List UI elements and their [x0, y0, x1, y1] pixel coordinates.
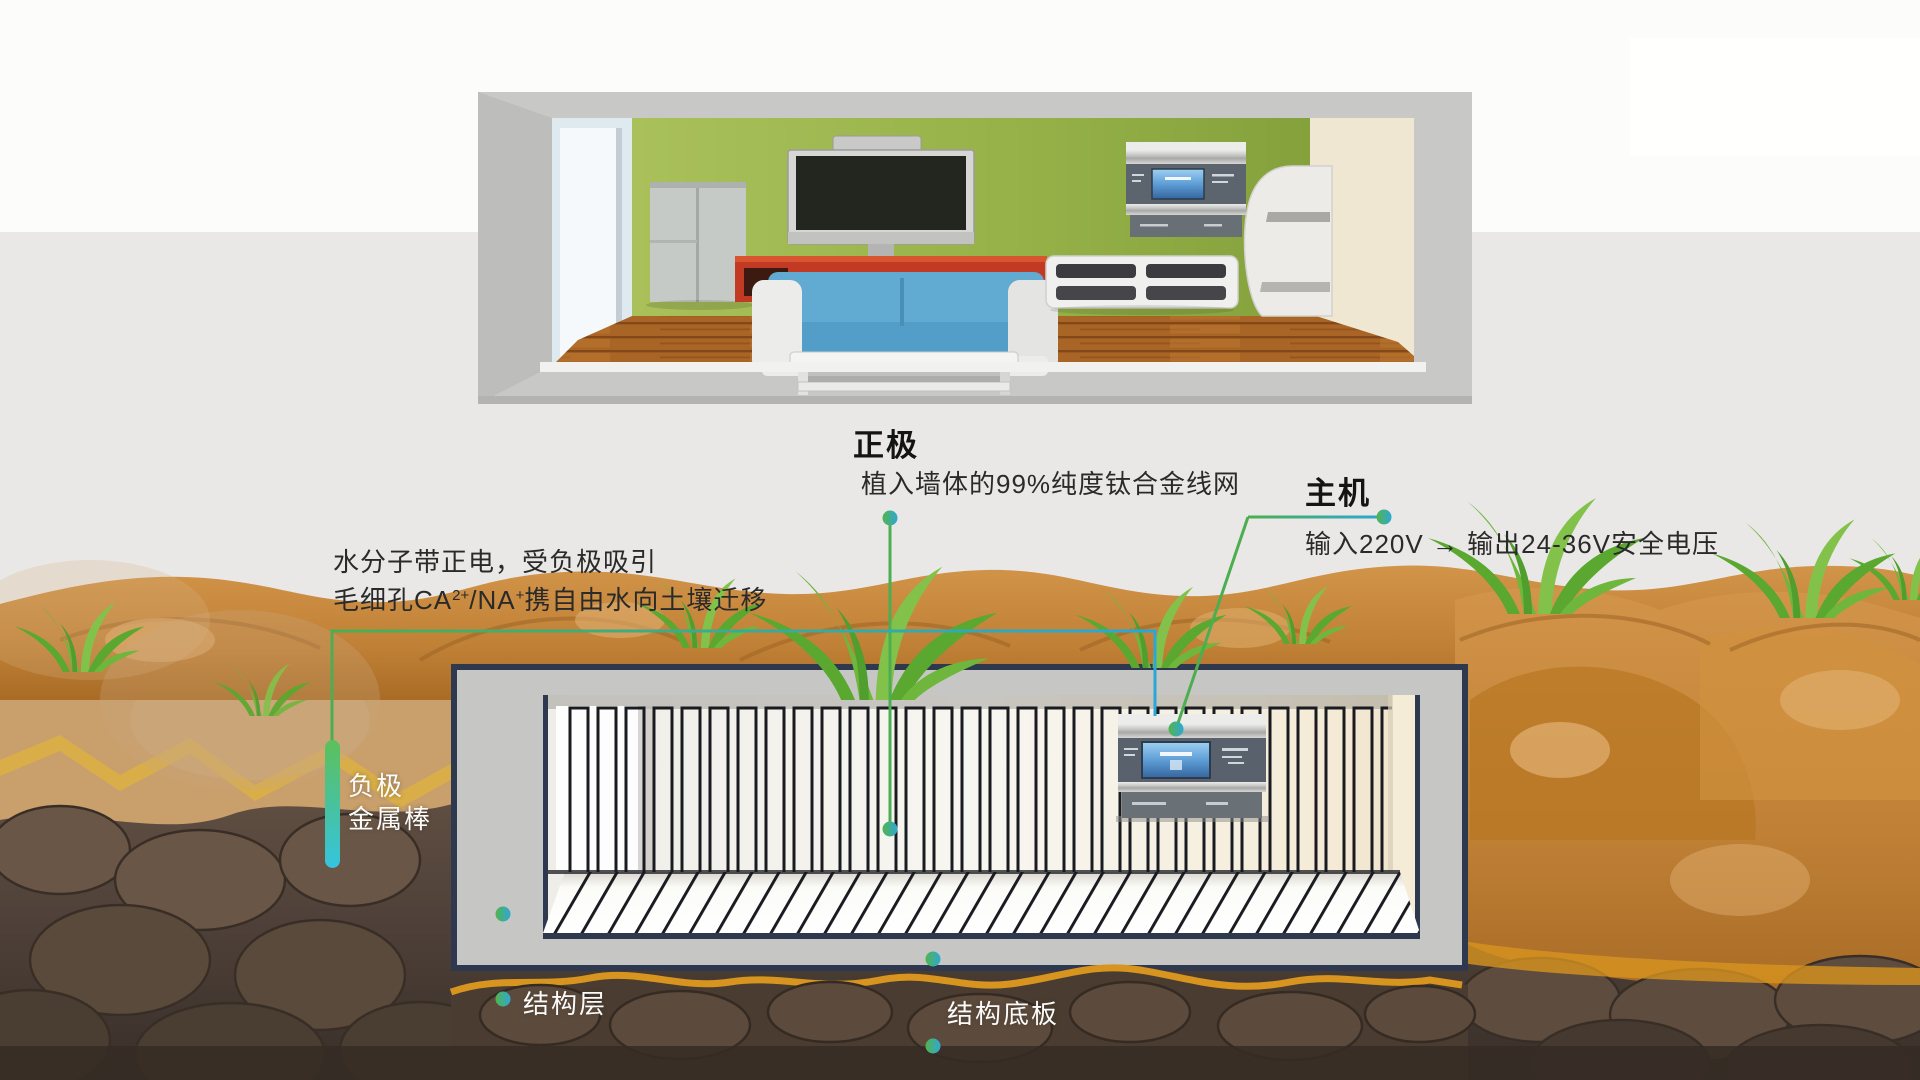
- structure-layer-dot-top: [496, 907, 511, 922]
- coffee-table: [790, 352, 1018, 395]
- base-plate-dot-bottom: [926, 1039, 941, 1054]
- host-device-dot: [1169, 722, 1184, 737]
- structure-layer-dot-bottom: [496, 992, 511, 1007]
- ion-superscript-ca: 2+: [452, 587, 469, 604]
- base-plate-label: 结构底板: [947, 994, 1059, 1031]
- mechanism-line2-pre: 毛细孔CA: [333, 585, 452, 615]
- host-marker-dot: [1377, 510, 1392, 525]
- dehumidifier-host-room: [1126, 142, 1246, 237]
- mechanism-line2: 毛细孔CA2+/NA+携自由水向土壤迁移: [333, 580, 767, 617]
- base-plate-dot-top: [926, 952, 941, 967]
- positive-desc: 植入墙体的99%纯度钛合金线网: [861, 464, 1240, 501]
- corner-shelf: [1244, 166, 1332, 316]
- mechanism-line2-post: 携自由水向土壤迁移: [524, 585, 767, 615]
- positive-marker-dot: [883, 511, 898, 526]
- mechanism-line2-mid: /NA: [469, 585, 515, 615]
- floor-wire-mesh: [543, 872, 1420, 933]
- basement-cutaway: [451, 664, 1468, 971]
- media-shelf: [1046, 256, 1238, 315]
- wall-wire-mesh: [565, 702, 1397, 872]
- dehumidifier-host-basement: [1116, 714, 1268, 822]
- negative-electrode-line1: 负极: [348, 770, 432, 803]
- host-title: 主机: [1305, 468, 1371, 513]
- host-desc: 输入220V → 输出24-36V安全电压: [1305, 524, 1719, 561]
- tv: [788, 136, 974, 256]
- positive-title: 正极: [853, 420, 919, 465]
- mechanism-line1: 水分子带正电，受负极吸引: [333, 542, 657, 579]
- structure-layer-label: 结构层: [523, 984, 607, 1021]
- negative-metal-rod: [325, 740, 340, 868]
- positive-wall-dot: [883, 822, 898, 837]
- negative-electrode-label: 负极 金属棒: [348, 770, 432, 836]
- living-room-cutaway: [478, 92, 1472, 404]
- negative-electrode-line2: 金属棒: [348, 803, 432, 836]
